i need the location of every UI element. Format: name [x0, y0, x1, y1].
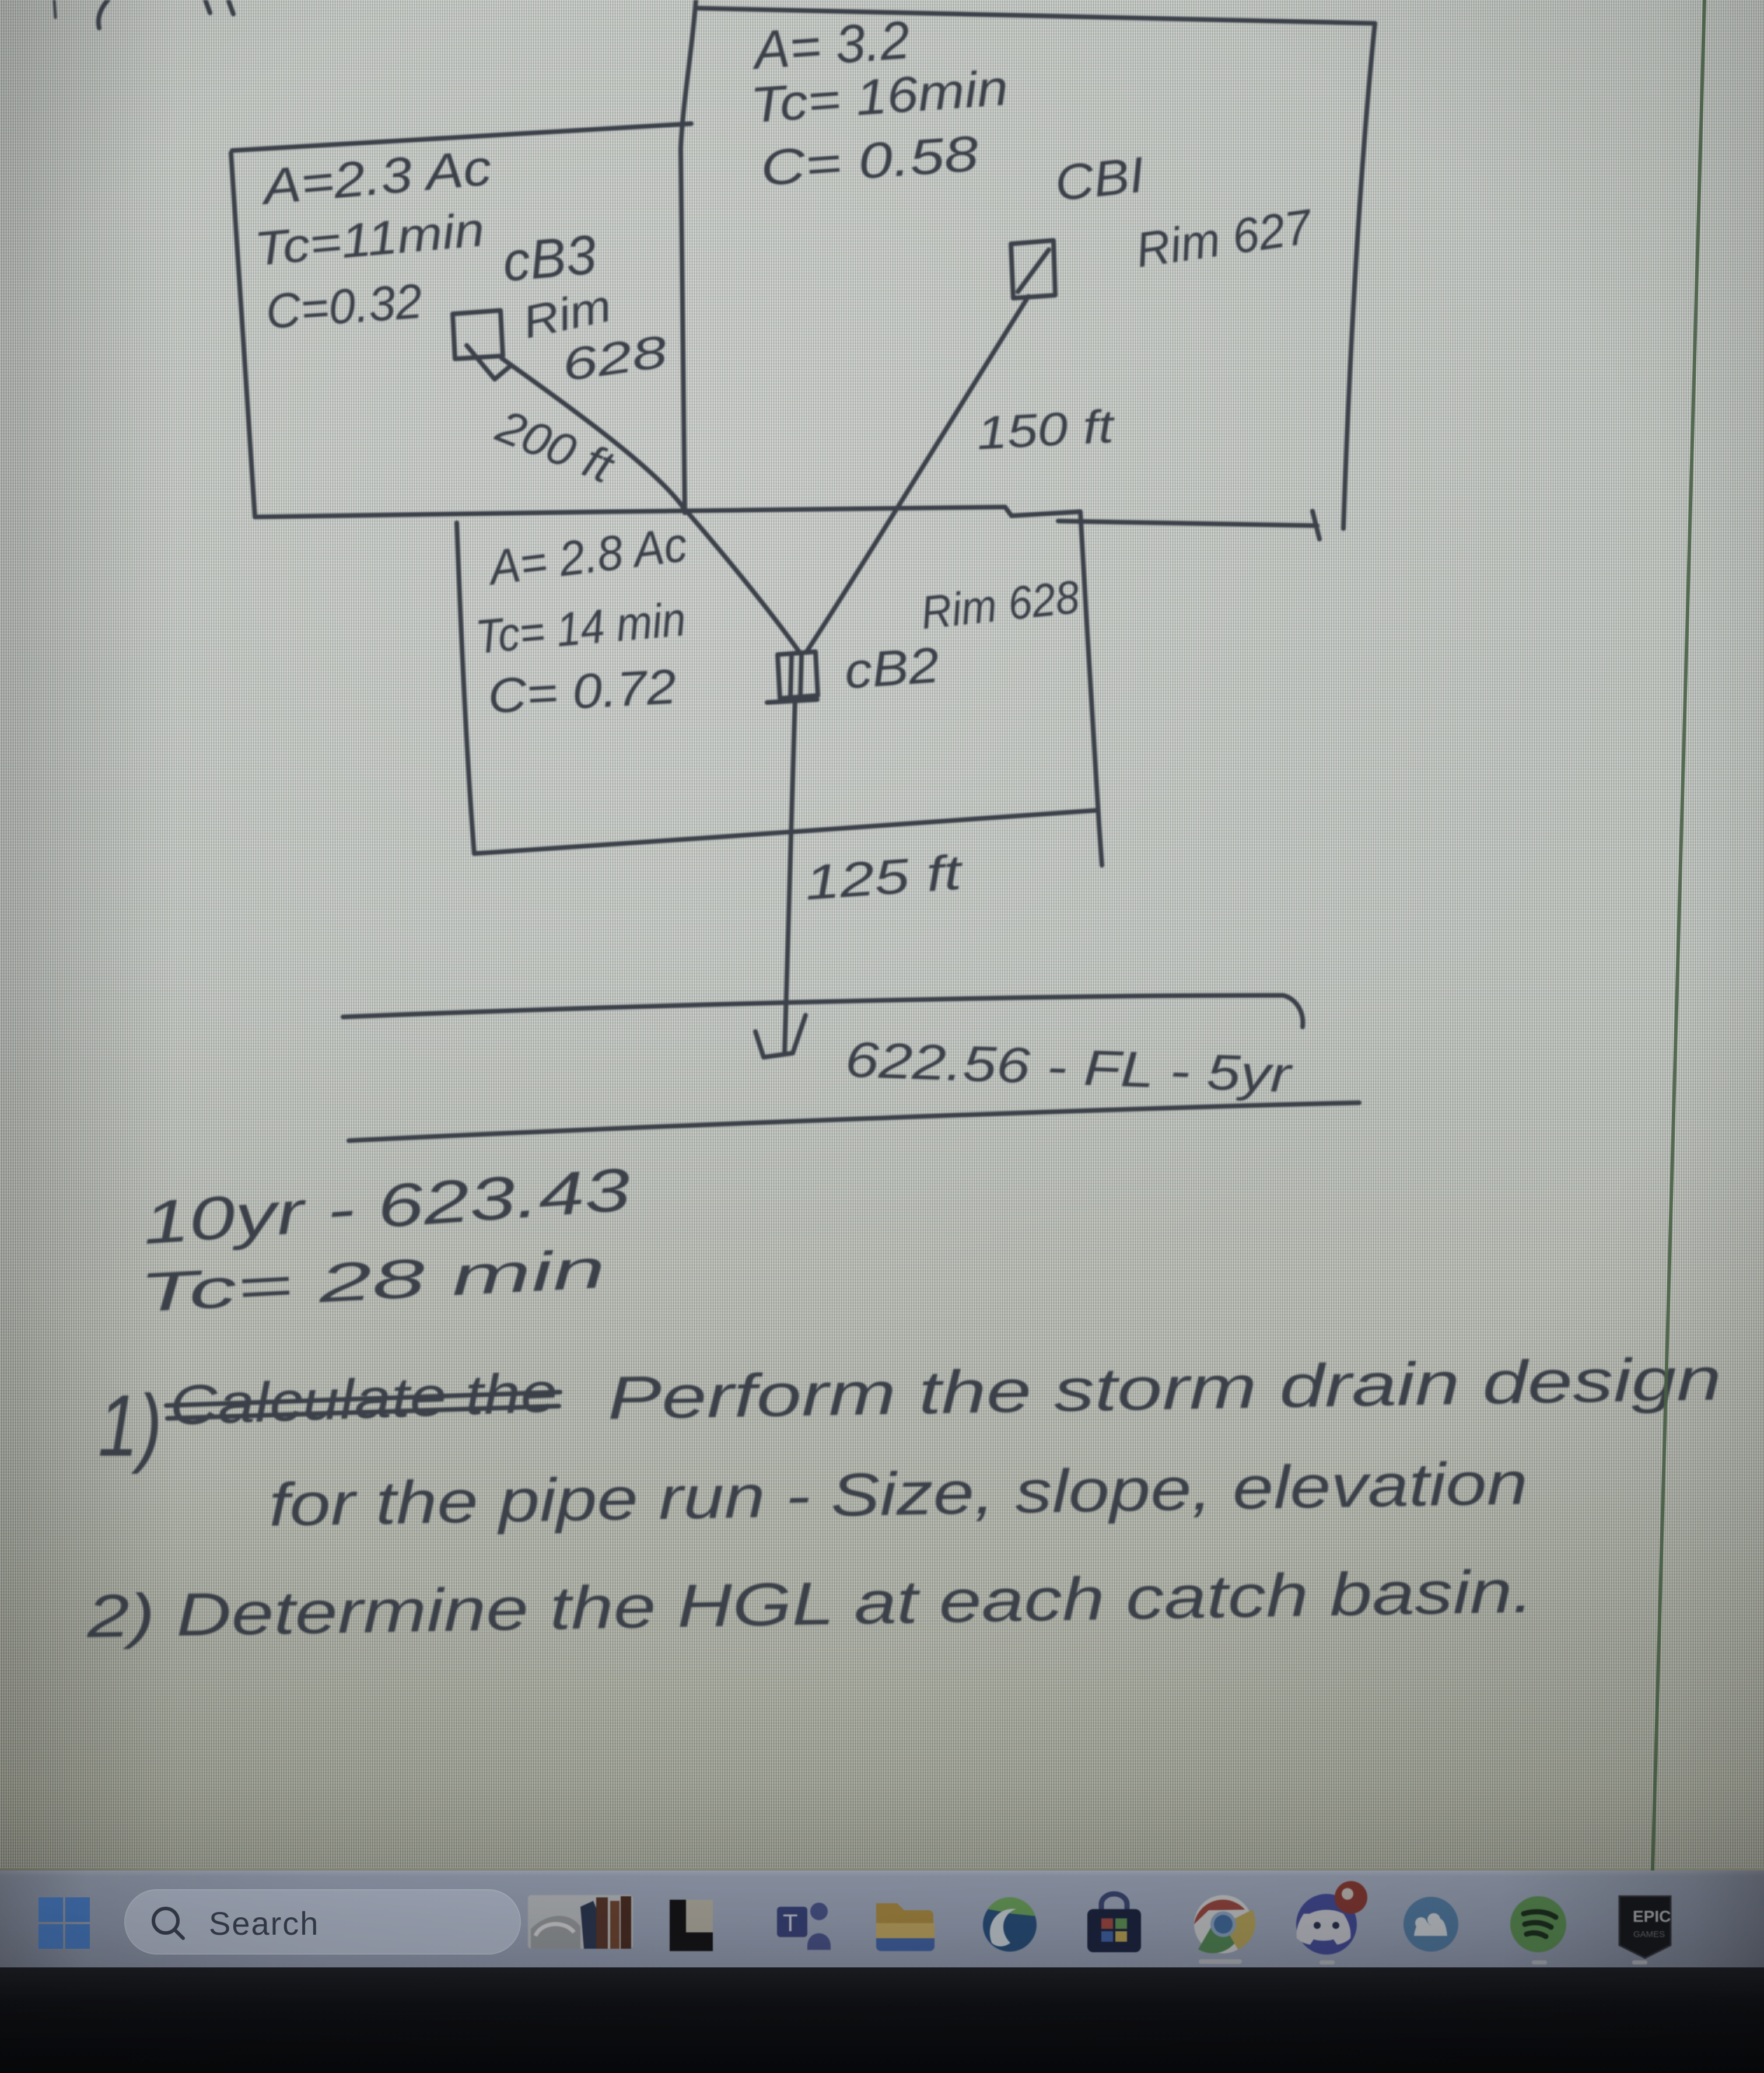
svg-text:T: T	[783, 1909, 798, 1936]
svg-text:EPIC: EPIC	[1633, 1907, 1671, 1925]
svg-text:GAMES: GAMES	[1633, 1929, 1665, 1939]
